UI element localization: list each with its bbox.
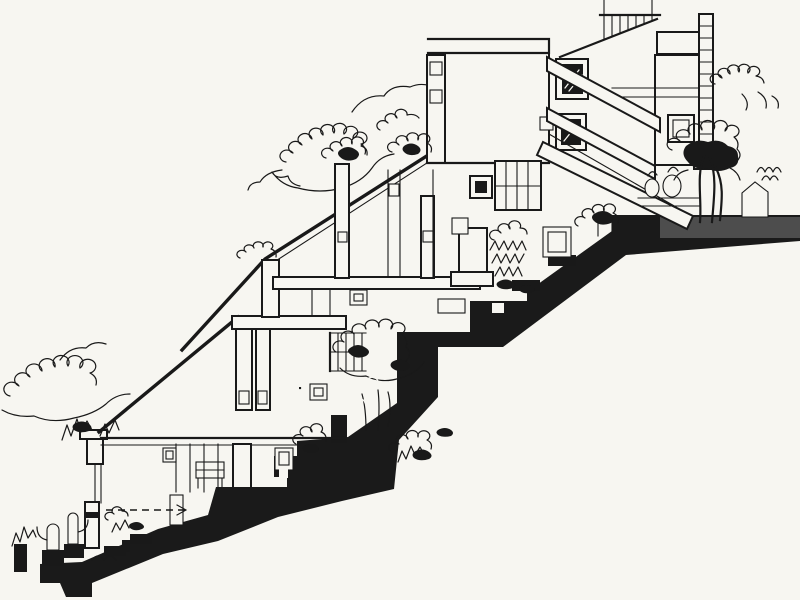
black-planter xyxy=(14,544,27,572)
chimney-mast xyxy=(335,164,349,278)
ground-notch xyxy=(492,303,504,313)
ring-window-core xyxy=(475,181,487,193)
wall-window xyxy=(310,384,327,400)
mullioned-window xyxy=(495,161,541,210)
under-slab-window xyxy=(350,290,367,305)
column-detail xyxy=(430,90,442,103)
small-window xyxy=(452,218,468,234)
column-detail xyxy=(430,62,442,75)
stair-landing-band xyxy=(657,32,704,54)
interior-steps xyxy=(271,477,287,487)
ground-step xyxy=(130,534,152,544)
section-drawing xyxy=(0,0,800,600)
planter xyxy=(42,550,64,566)
sofa-sketch xyxy=(459,228,487,278)
interior-window xyxy=(275,448,293,470)
small-window xyxy=(163,448,176,462)
mast-window xyxy=(338,232,347,242)
sofa-base xyxy=(451,272,493,286)
pier-band xyxy=(85,512,99,518)
cactus xyxy=(47,524,59,550)
wall-window xyxy=(423,231,433,242)
interior-door xyxy=(233,444,251,488)
parapet-post xyxy=(87,439,103,464)
floor-slab xyxy=(273,277,480,289)
section-drawing-page xyxy=(0,0,800,600)
column-window xyxy=(258,391,267,404)
wall-window xyxy=(389,184,399,196)
upper-block-face xyxy=(445,53,549,163)
interior-steps xyxy=(279,467,288,478)
lower-window xyxy=(438,299,465,313)
planter xyxy=(64,544,84,558)
terrace-slab xyxy=(232,316,346,329)
column-window xyxy=(239,391,249,404)
cactus xyxy=(68,513,78,544)
